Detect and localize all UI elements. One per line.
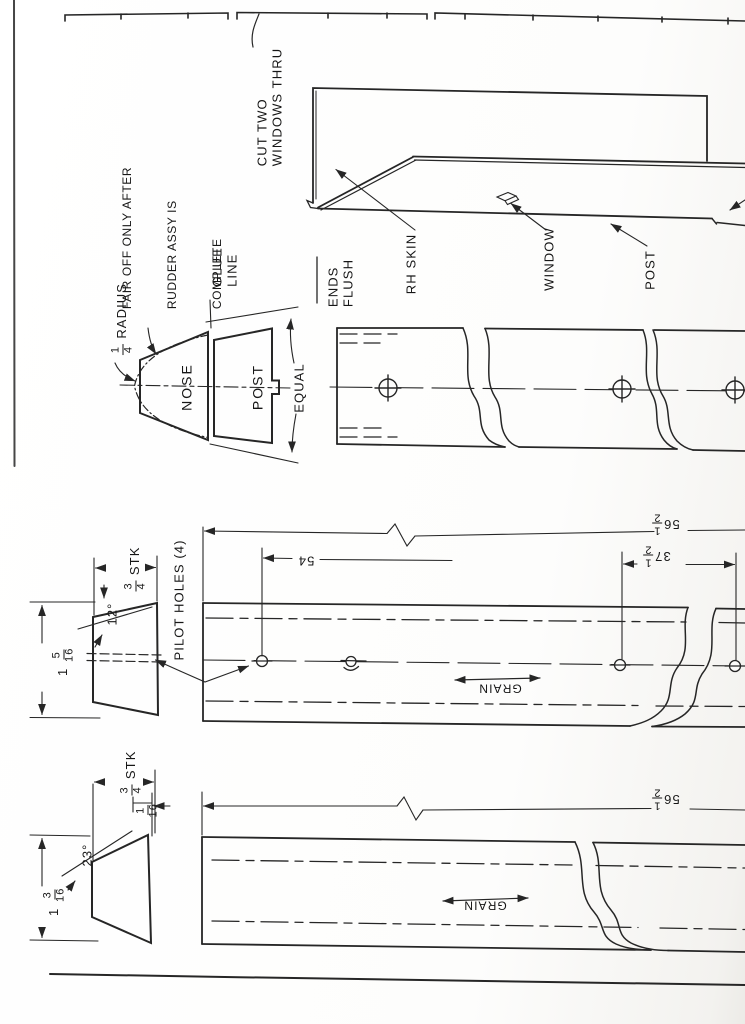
fair-off-curve — [135, 335, 209, 438]
top-edge-ruler — [65, 13, 745, 48]
pilot-holes-leaders — [156, 660, 249, 682]
nose-block-label: NOSE — [180, 363, 195, 411]
ends-flush-note: ENDSFLUSH — [296, 259, 371, 307]
plan-sheet: CUT TWOWINDOWS THRU RH SKIN WINDOW POST … — [0, 0, 745, 1024]
glue-line-label: GLUELINE — [180, 247, 255, 287]
radius-fraction: 14 — [111, 344, 135, 354]
pilot-hole-hidden-lines — [87, 654, 162, 663]
height-dim-bot: 1 316 — [28, 887, 67, 926]
top-edge — [202, 837, 745, 845]
equal-ext-bottom — [210, 444, 298, 463]
page-border-left — [14, 0, 15, 466]
skin-left-edge-b — [321, 160, 416, 210]
hidden-lines — [206, 618, 745, 707]
wood-break-line — [652, 609, 716, 727]
upper-board — [330, 328, 745, 451]
top-edge — [203, 603, 745, 609]
grain-label-bot: GRAIN — [463, 898, 507, 913]
angle-dim-mid: 12° — [105, 603, 120, 626]
height-dim-mid: 1 516 — [37, 647, 76, 686]
wood-break-line — [575, 842, 651, 950]
drawing-canvas — [0, 0, 745, 1024]
post-label: POST — [643, 250, 658, 290]
hinge-line-b — [415, 160, 745, 168]
board-centerline — [203, 660, 745, 666]
edge-arrow — [730, 200, 745, 210]
dim-54 — [262, 548, 452, 656]
wood-break-line — [463, 328, 505, 447]
centerline-break-symbol — [341, 657, 366, 671]
radius-label: 14 RADIUS — [96, 283, 135, 365]
cut-windows-leader — [252, 14, 259, 47]
equal-arrow-bottom — [292, 414, 296, 452]
skin-bottom-edge — [318, 209, 712, 219]
post-block-label: POST — [251, 364, 266, 410]
wood-break-line — [630, 608, 688, 727]
grain-label-mid: GRAIN — [478, 681, 522, 696]
nose-post-detail — [115, 300, 298, 463]
post-block — [214, 329, 279, 444]
skin-assembly-leaders — [317, 170, 745, 304]
window-cutout-symbol — [497, 193, 519, 205]
equal-label: EQUAL — [292, 363, 307, 413]
post-leader — [611, 224, 647, 246]
angle-dim-bot: 23° — [80, 844, 95, 867]
dim-54-label: 54 — [298, 554, 315, 569]
rh-skin-label: RH SKIN — [404, 234, 419, 294]
stk-dim-mid: 34 STK — [109, 547, 148, 602]
radius-leader — [115, 363, 135, 381]
dim-56-top-label: 5612 — [651, 512, 689, 551]
fair-off-leader — [148, 328, 156, 354]
pilot-holes-label: PILOT HOLES (4) — [172, 539, 187, 660]
dim-56-bot-label: 5612 — [651, 787, 689, 826]
stk-dim-bot: 34 STK — [105, 751, 144, 806]
offset-dim-bot: 116 — [121, 802, 160, 828]
post-strip-end — [712, 219, 745, 226]
skin-left-edge-a — [318, 157, 413, 208]
back-panel-outline — [313, 88, 707, 203]
hinge-line-a — [413, 157, 745, 164]
rh-skin-leader — [336, 170, 415, 231]
window-label: WINDOW — [542, 227, 557, 291]
cut-windows-note: CUT TWOWINDOWS THRU — [225, 48, 300, 166]
equal-arrow-top — [290, 319, 294, 363]
profile-outline — [93, 603, 158, 715]
bottom-edge — [337, 444, 745, 451]
equal-ext-top — [206, 307, 298, 322]
skin-assembly — [307, 88, 745, 226]
page-border-bottom — [50, 974, 745, 985]
wood-break-line — [485, 329, 519, 448]
window-leader — [511, 204, 546, 231]
top-edge — [337, 328, 745, 331]
hidden-lines — [212, 860, 745, 930]
